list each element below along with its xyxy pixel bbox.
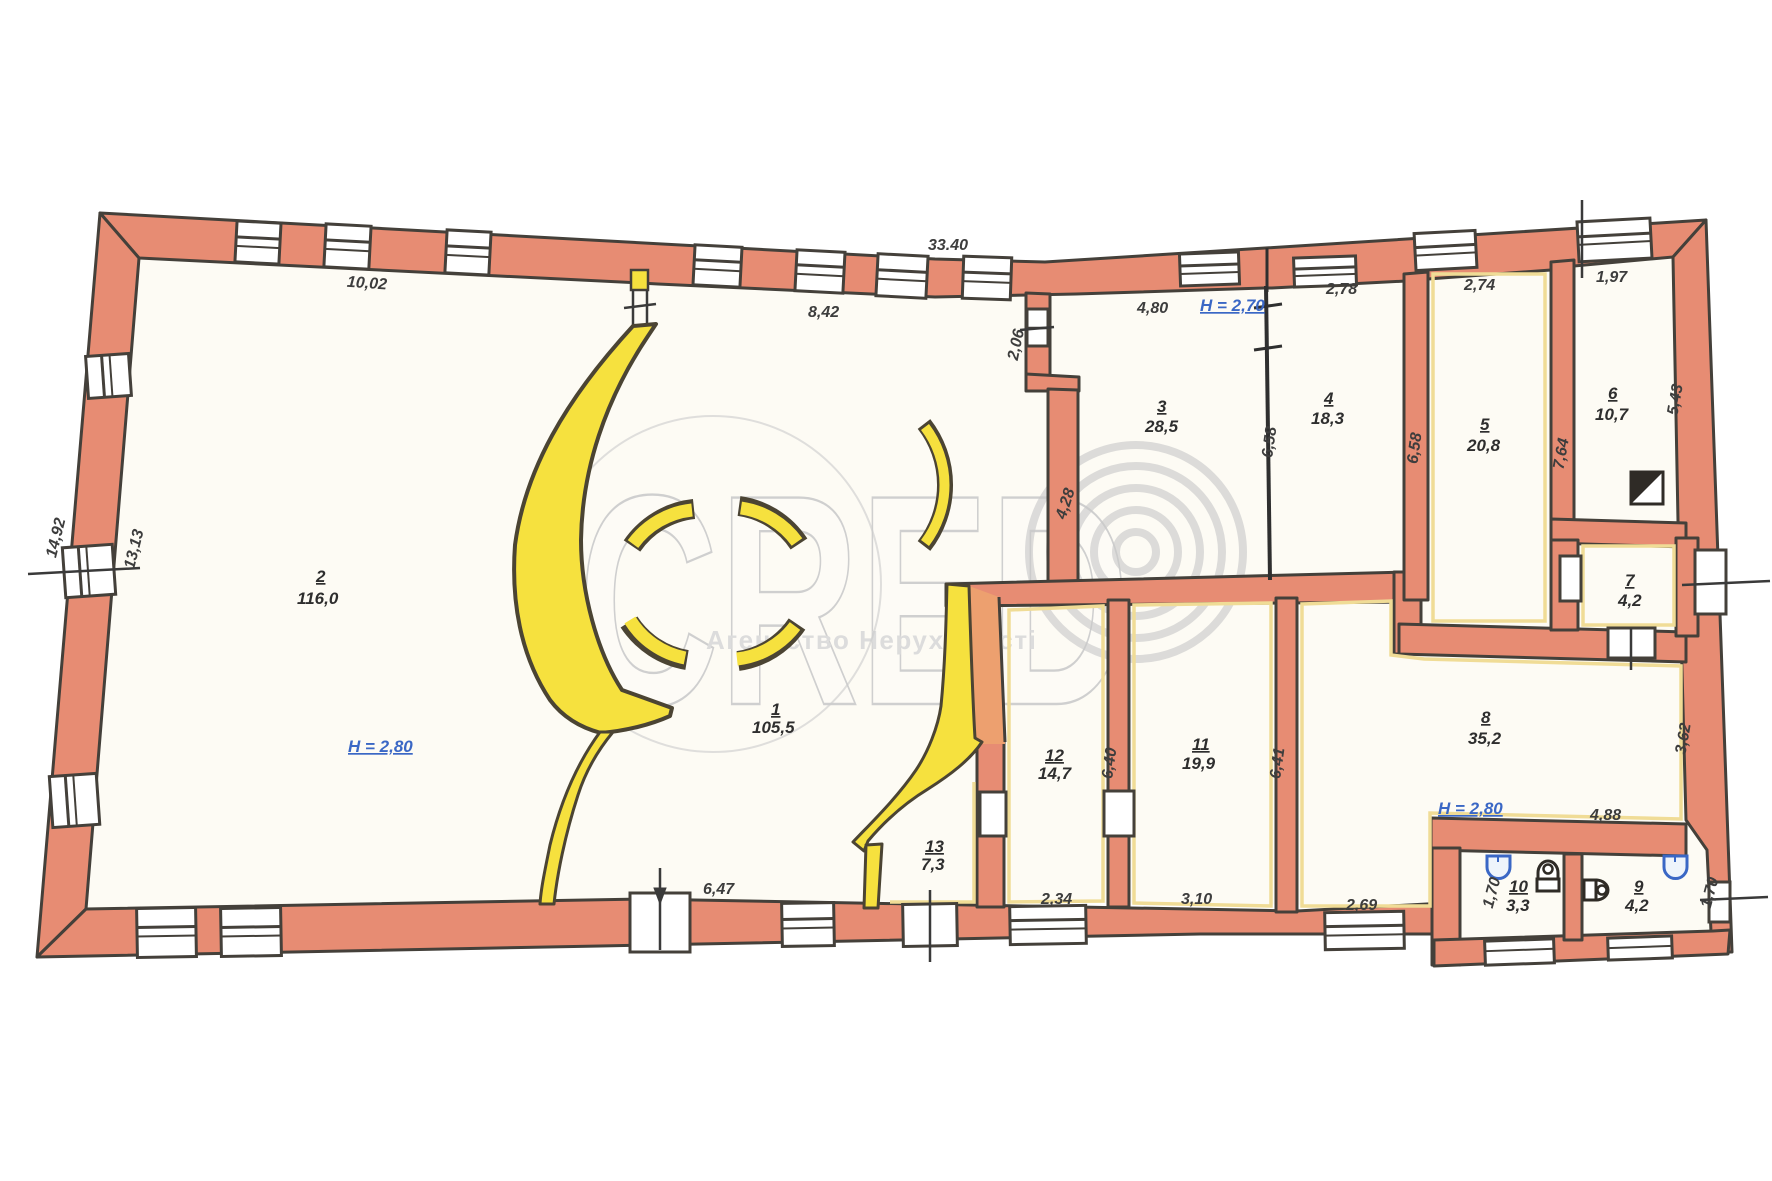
svg-text:7,3: 7,3 [921,855,945,874]
svg-text:116,0: 116,0 [297,589,339,608]
svg-text:5: 5 [1480,415,1490,434]
svg-text:2,74: 2,74 [1463,277,1495,294]
svg-text:2: 2 [315,567,326,586]
svg-text:7: 7 [1625,571,1636,590]
svg-text:35,2: 35,2 [1468,729,1502,748]
svg-text:105,5: 105,5 [752,718,795,737]
svg-text:14,7: 14,7 [1038,764,1073,783]
svg-text:18,3: 18,3 [1311,409,1345,428]
svg-text:10: 10 [1509,877,1528,896]
svg-text:28,5: 28,5 [1144,417,1179,436]
svg-text:6,47: 6,47 [703,881,735,898]
svg-text:4,88: 4,88 [1589,807,1621,824]
svg-text:13: 13 [925,837,944,856]
svg-text:9: 9 [1634,877,1644,896]
svg-text:H = 2,80: H = 2,80 [348,737,413,756]
svg-text:3,3: 3,3 [1506,896,1530,915]
svg-text:10,02: 10,02 [346,274,387,294]
svg-text:20,8: 20,8 [1466,436,1501,455]
svg-text:H = 2,80: H = 2,80 [1438,799,1503,818]
svg-text:3,10: 3,10 [1181,891,1212,908]
svg-text:3: 3 [1157,397,1167,416]
svg-text:4,2: 4,2 [1624,896,1649,915]
svg-text:12: 12 [1045,746,1064,765]
svg-text:8,42: 8,42 [808,304,839,321]
svg-text:4,80: 4,80 [1136,300,1168,317]
svg-text:19,9: 19,9 [1182,754,1216,773]
svg-text:8: 8 [1481,708,1491,727]
svg-text:2,69: 2,69 [1345,897,1377,914]
svg-text:1,97: 1,97 [1596,269,1628,286]
svg-text:4: 4 [1323,389,1334,408]
svg-text:2,34: 2,34 [1040,891,1072,908]
svg-text:4,2: 4,2 [1617,591,1642,610]
svg-text:2,78: 2,78 [1325,281,1357,298]
svg-text:10,7: 10,7 [1595,405,1630,424]
svg-text:11: 11 [1192,735,1210,754]
svg-text:33.40: 33.40 [928,237,968,254]
svg-text:1: 1 [771,700,780,719]
svg-text:H = 2,70: H = 2,70 [1200,296,1265,315]
svg-text:6: 6 [1608,384,1618,403]
